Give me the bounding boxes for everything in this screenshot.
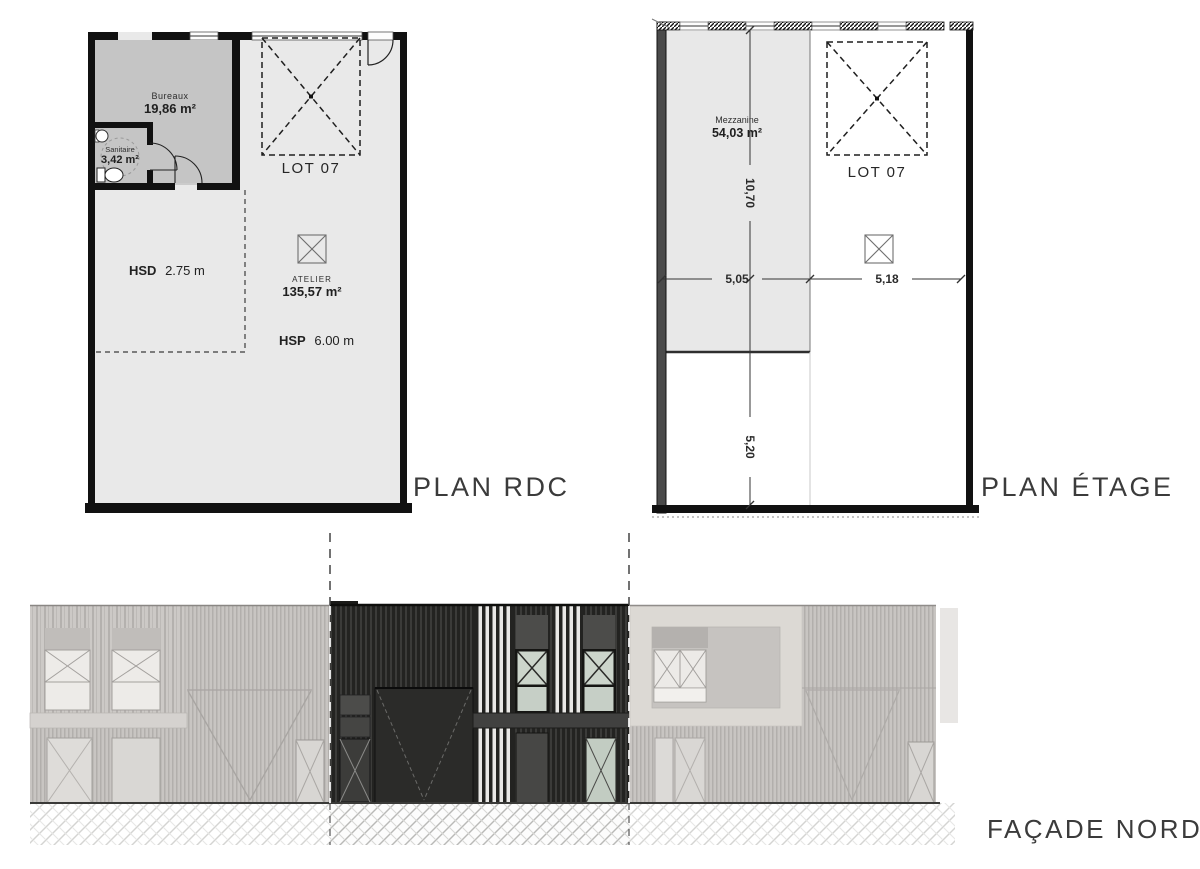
- architectural-sheet: { "page": {"width": 1200, "height": 869,…: [0, 0, 1200, 869]
- dark-barn-door: [375, 688, 473, 803]
- lot07-center-dot-etage: [875, 97, 879, 101]
- mezzanine-slab: [666, 31, 810, 352]
- white-stripe-panel-2: [553, 605, 582, 713]
- facade-right-neighbor: [629, 605, 958, 803]
- left-window-1: [45, 650, 90, 710]
- bureaux-label: Bureaux: [151, 91, 188, 101]
- lot07-label-rdc: LOT 07: [282, 160, 341, 177]
- dim-horizontal-right: 5,18: [875, 272, 899, 286]
- left-door-3: [296, 740, 324, 803]
- canopy-band: [473, 713, 631, 728]
- plan-etage-title: PLAN ÉTAGE: [981, 472, 1174, 503]
- facade-nord-title: FAÇADE NORD: [987, 814, 1200, 845]
- atelier-area: 135,57 m²: [282, 284, 342, 299]
- lot07-center-dot: [309, 95, 313, 99]
- dark-window-2: [582, 649, 616, 713]
- sanitaire-area: 3,42 m²: [101, 154, 139, 166]
- plan-rdc-drawing: Bureaux 19,86 m² Sanitaire 3,42 m² LOT 0…: [85, 25, 415, 520]
- right-door-3: [908, 742, 934, 803]
- toilet-fixture: [97, 168, 123, 182]
- left-window-2: [112, 650, 160, 710]
- white-stripe-panel-1: [475, 605, 512, 803]
- left-door-1: [47, 738, 92, 803]
- right-door-2: [675, 738, 705, 803]
- right-door-1: [655, 738, 673, 803]
- mezzanine-label: Mezzanine: [715, 115, 759, 125]
- sage-door-x: [586, 738, 616, 803]
- left-slab-band: [30, 713, 187, 728]
- plan-etage-drawing: LOT 07 Mezzanine 54,03 m² 10,70 5,20 5,0…: [650, 15, 990, 525]
- facade-nord-drawing: [20, 528, 1180, 863]
- hsd-annotation: HSD 2.75 m: [129, 263, 205, 278]
- sanitaire-label: Sanitaire: [105, 145, 135, 154]
- right-window: [654, 650, 706, 702]
- dim-vertical-top: 10,70: [743, 178, 757, 208]
- mezzanine-area: 54,03 m²: [712, 126, 762, 140]
- left-door-2: [112, 738, 160, 803]
- atelier-label: ATELIER: [292, 275, 332, 284]
- dim-horizontal-left: 5,05: [725, 272, 749, 286]
- bureaux-area: 19,86 m²: [144, 101, 197, 116]
- hsp-annotation: HSP 6.00 m: [279, 333, 354, 348]
- ground-hatch-highlight: [330, 803, 629, 845]
- dark-window-1: [515, 649, 549, 713]
- plan-rdc-title: PLAN RDC: [413, 472, 570, 503]
- dark-door-x-left: [340, 739, 370, 802]
- facade-lot07-highlighted: [330, 601, 631, 803]
- dim-vertical-bottom: 5,20: [743, 435, 757, 459]
- lot07-label-etage: LOT 07: [848, 164, 907, 181]
- basin-fixture: [95, 130, 108, 142]
- facade-left-neighbor: [30, 605, 330, 803]
- dark-door-plain: [516, 733, 548, 803]
- atelier-symbol-etage: [865, 235, 893, 263]
